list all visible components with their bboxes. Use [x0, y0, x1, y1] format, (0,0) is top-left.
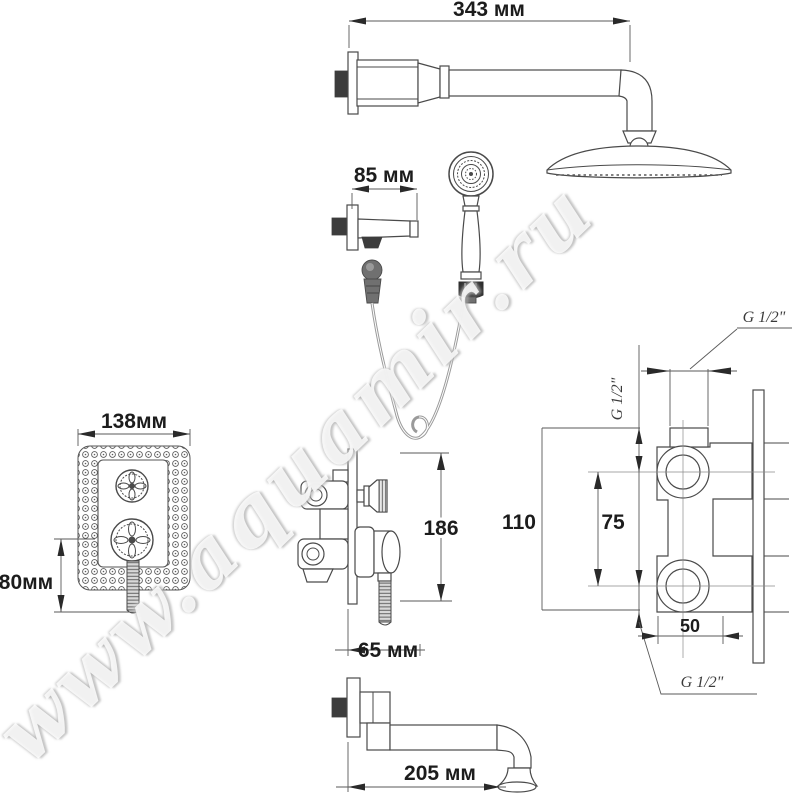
dimension-faceplate-width: 138мм: [78, 410, 190, 446]
faceplate-height-label: 80мм: [0, 571, 53, 594]
mixer-valve-side-view: [298, 449, 400, 625]
diverter-knob: [116, 470, 148, 502]
inlet-spacing-label: 75: [601, 511, 625, 534]
hose-outlet: [362, 260, 382, 303]
technical-drawing-canvas: 343 мм 85 мм: [0, 0, 800, 800]
lever-handle: [127, 561, 139, 613]
hand-shower: [449, 152, 493, 303]
mixer-knob: [111, 519, 153, 561]
hand-shower-holder: [332, 205, 418, 250]
thread-label-bottom: G 1/2": [681, 674, 724, 691]
thread-label-side-group: G 1/2": [609, 377, 626, 420]
valve-height-label: 186: [423, 517, 458, 540]
dimension-valve-height: 186: [400, 453, 459, 601]
dimension-reference-line: [636, 345, 643, 628]
body-height-label: 110: [502, 511, 536, 534]
thread-label-top: G 1/2": [743, 309, 786, 326]
side-view-cartridge: [355, 527, 400, 625]
dimension-inlet-spacing: 75: [594, 472, 625, 586]
dimension-port-width: G 1/2": [641, 309, 792, 426]
dimension-shower-arm-length: 343 мм: [349, 0, 630, 62]
control-faceplate: [78, 446, 190, 613]
faceplate-width-label: 138мм: [101, 410, 167, 433]
valve-depth-label: 65 мм: [358, 639, 418, 662]
overhead-shower-head: [547, 146, 731, 178]
overhead-shower-arm: [335, 52, 656, 156]
shower-set-diagram: 343 мм 85 мм: [0, 0, 800, 800]
shower-hose: [372, 296, 468, 438]
dimension-inlet-offset: 50: [638, 616, 743, 644]
dimension-holder-length: 85 мм: [352, 164, 417, 220]
shower-arm-length-label: 343 мм: [453, 0, 525, 21]
holder-length-label: 85 мм: [354, 164, 414, 187]
side-view-knob: [357, 480, 387, 512]
inlet-offset-label: 50: [680, 616, 700, 636]
thread-label-side: G 1/2": [609, 377, 626, 420]
spout-length-label: 205 мм: [404, 762, 476, 785]
